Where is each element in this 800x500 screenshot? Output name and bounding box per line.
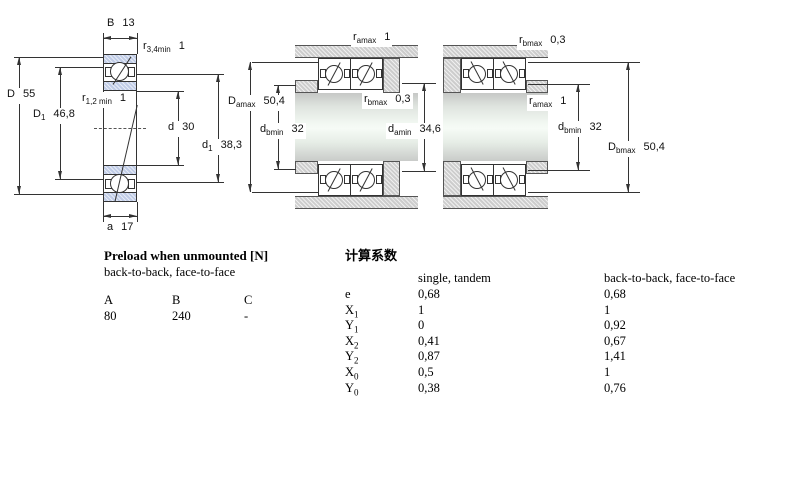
dim-value: 1 [120, 92, 126, 104]
extension-line [14, 57, 103, 58]
dim-symbol: D [608, 141, 616, 153]
dim-label-d1: d138,3 [200, 139, 244, 155]
extension-line [402, 171, 436, 172]
dim-symbol: D [33, 108, 41, 120]
dim-value: 50,4 [264, 95, 285, 107]
cage-square [376, 175, 382, 184]
extension-line [137, 74, 224, 75]
dim-value: 46,8 [53, 108, 74, 120]
dim-label-a: a17 [105, 221, 135, 237]
dim-value: 34,6 [419, 123, 440, 135]
dim-symbol: a [107, 221, 113, 233]
dim-subscript: bmax [368, 98, 388, 107]
extension-line [528, 192, 640, 193]
dim-value: 30 [182, 121, 194, 133]
dim-label-r-amax-right: ramax1 [527, 95, 568, 111]
extension-line [14, 194, 103, 195]
dim-value: 55 [23, 88, 35, 100]
extension-line [55, 179, 103, 180]
dim-line-B [103, 38, 137, 39]
dim-subscript: 1,2 min [86, 97, 112, 106]
dim-symbol: D [228, 95, 236, 107]
factor-value-back-to-back: 1 [604, 365, 610, 380]
dim-subscript: 3,4min [147, 45, 171, 54]
dim-label-D-bmax: Dbmax50,4 [606, 141, 667, 157]
dim-subscript: bmin [564, 126, 581, 135]
dim-value: 13 [122, 17, 134, 29]
dim-label-d-bmin-right: dbmin32 [556, 121, 604, 137]
factors-title: 计算系数 [345, 248, 397, 263]
dim-label-d: d30 [166, 121, 196, 137]
dim-subscript: bmax [523, 39, 543, 48]
cage-square [344, 69, 350, 78]
dim-label-d-amin: damin34,6 [386, 123, 443, 139]
factor-value-single-tandem: 0 [418, 318, 424, 333]
dim-value: 1 [384, 31, 390, 43]
factor-value-back-to-back: 0,67 [604, 334, 626, 349]
extension-line [137, 33, 138, 54]
bearing-datasheet-page: B13 r3,4min1 D55 D146,8 r1,2 min1 d30 d1… [0, 0, 800, 500]
extension-line [274, 169, 296, 170]
dim-symbol: B [107, 17, 114, 29]
factor-value-back-to-back: 1 [604, 303, 610, 318]
cage-square [519, 69, 525, 78]
dim-subscript: amax [357, 36, 377, 45]
dim-symbol: d [168, 121, 174, 133]
factor-label: Y0 [345, 381, 359, 401]
cage-square [128, 179, 135, 189]
factor-value-single-tandem: 0,41 [418, 334, 440, 349]
dim-label-D1: D146,8 [31, 108, 77, 124]
dim-value: 1 [560, 95, 566, 107]
dim-value: 1 [179, 40, 185, 52]
dim-line-D-amax [250, 62, 251, 192]
pair-divider [350, 58, 351, 90]
dim-subscript: bmin [266, 128, 283, 137]
pair-divider [493, 164, 494, 196]
dim-line-a [103, 216, 137, 217]
dim-line-D [19, 57, 20, 194]
extension-line [528, 84, 590, 85]
dim-value: 17 [121, 221, 133, 233]
cage-square [487, 175, 493, 184]
dim-label-r-amax-mid: ramax1 [351, 31, 392, 47]
extension-line [402, 83, 436, 84]
factor-value-back-to-back: 0,76 [604, 381, 626, 396]
dim-subscript: amax [236, 100, 256, 109]
dim-value: 0,3 [395, 93, 410, 105]
cage-square [487, 69, 493, 78]
dim-line-d1 [218, 74, 219, 182]
extension-line [528, 62, 640, 63]
factor-value-single-tandem: 1 [418, 303, 424, 318]
pair-divider [350, 164, 351, 196]
extension-line [137, 182, 224, 183]
factor-value-back-to-back: 0,68 [604, 287, 626, 302]
extension-line [55, 67, 103, 68]
dim-subscript: 1 [208, 144, 212, 153]
factor-value-single-tandem: 0,68 [418, 287, 440, 302]
extension-line [103, 202, 104, 222]
dim-value: 0,3 [550, 34, 565, 46]
dim-label-d-bmin-mid: dbmin32 [258, 123, 306, 139]
dim-value: 50,4 [644, 141, 665, 153]
extension-line [252, 62, 318, 63]
dim-label-D-amax: Damax50,4 [226, 95, 287, 111]
dim-label-B: B13 [105, 17, 137, 33]
dim-symbol: D [7, 88, 15, 100]
factor-value-back-to-back: 1,41 [604, 349, 626, 364]
dim-subscript: amin [394, 128, 411, 137]
cage-square [344, 175, 350, 184]
pair-divider [493, 58, 494, 90]
extension-line [137, 202, 138, 222]
cage-square [128, 67, 135, 77]
dim-label-r12min: r1,2 min1 [80, 92, 128, 108]
factor-value-single-tandem: 0,87 [418, 349, 440, 364]
extension-line [252, 192, 318, 193]
dim-value: 38,3 [221, 139, 242, 151]
factors-col-header-back-to-back: back-to-back, face-to-face [604, 271, 735, 286]
factors-col-header-single-tandem: single, tandem [418, 271, 491, 286]
dim-line-D-bmax [628, 62, 629, 192]
dim-subscript: amax [533, 100, 553, 109]
extension-line [137, 165, 184, 166]
dim-label-r34min: r3,4min1 [141, 40, 187, 56]
dim-label-r-bmax-right: rbmax0,3 [517, 34, 568, 50]
cage-square [519, 175, 525, 184]
factor-value-single-tandem: 0,5 [418, 365, 434, 380]
dim-value: 32 [291, 123, 303, 135]
cage-square [376, 69, 382, 78]
extension-line [528, 170, 590, 171]
factor-value-single-tandem: 0,38 [418, 381, 440, 396]
dim-subscript: bmax [616, 146, 636, 155]
dim-label-D: D55 [5, 88, 37, 104]
dim-subscript: 1 [41, 113, 45, 122]
dim-value: 32 [589, 121, 601, 133]
factor-value-back-to-back: 0,92 [604, 318, 626, 333]
dim-label-r-bmax-mid: rbmax0,3 [362, 93, 413, 109]
